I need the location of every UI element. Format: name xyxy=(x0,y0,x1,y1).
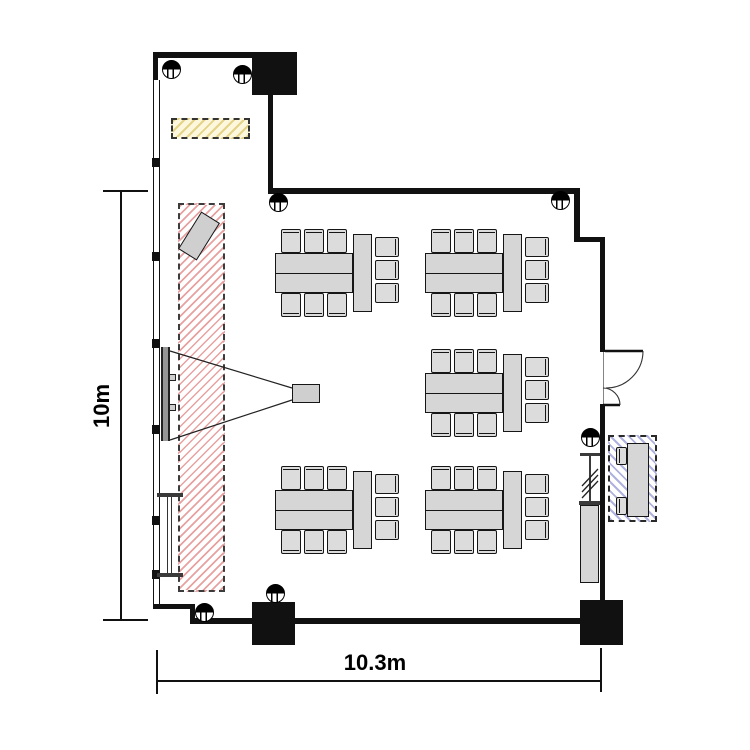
chair xyxy=(525,520,549,540)
chair xyxy=(477,466,497,490)
screen-bracket xyxy=(169,374,176,381)
chair xyxy=(327,530,347,554)
table xyxy=(425,253,503,293)
pillar-top xyxy=(252,55,297,95)
table-group xyxy=(425,229,550,317)
datum-marker-icon xyxy=(269,193,288,212)
chair xyxy=(327,293,347,317)
table-split-line xyxy=(425,393,503,394)
table-split-line xyxy=(275,510,353,511)
wall-right-upper xyxy=(600,237,605,352)
table-group xyxy=(275,229,400,317)
screen-bracket xyxy=(169,404,176,411)
table-split-line xyxy=(275,273,353,274)
linework-overlay xyxy=(0,0,750,750)
chair xyxy=(375,283,399,303)
chair xyxy=(616,497,627,515)
chair xyxy=(525,357,549,377)
dim-line-height xyxy=(120,191,122,620)
side-table xyxy=(503,234,522,312)
dim-line-width xyxy=(156,680,601,682)
chair xyxy=(431,466,451,490)
chair xyxy=(327,229,347,253)
chair xyxy=(375,520,399,540)
window-mullion xyxy=(152,339,159,348)
chair xyxy=(431,530,451,554)
chair xyxy=(304,293,324,317)
width-dimension-label: 10.3m xyxy=(330,650,420,676)
table xyxy=(275,490,353,530)
chair xyxy=(477,229,497,253)
chair xyxy=(327,466,347,490)
door-icon xyxy=(603,351,643,405)
table xyxy=(425,373,503,413)
chair xyxy=(477,349,497,373)
chair xyxy=(281,466,301,490)
side-table xyxy=(503,354,522,432)
chair xyxy=(281,229,301,253)
stage-strip-zone xyxy=(178,203,225,592)
chair xyxy=(304,466,324,490)
chair xyxy=(454,530,474,554)
table-split-line xyxy=(425,510,503,511)
chair xyxy=(525,380,549,400)
window-mullion xyxy=(152,158,159,167)
window-mullion xyxy=(152,516,159,525)
table-split-line xyxy=(425,273,503,274)
table-group xyxy=(425,466,550,554)
chair xyxy=(304,229,324,253)
height-dimension-label: 10m xyxy=(89,376,115,436)
window-mullion xyxy=(152,252,159,261)
projector xyxy=(292,384,320,403)
chair xyxy=(281,293,301,317)
chair xyxy=(454,466,474,490)
screen xyxy=(161,347,170,441)
chair xyxy=(431,229,451,253)
chair xyxy=(525,497,549,517)
chair xyxy=(477,413,497,437)
wall-bottom-left xyxy=(153,604,193,609)
chair xyxy=(375,260,399,280)
dim-tick xyxy=(103,619,148,621)
side-counter xyxy=(580,505,599,583)
datum-marker-icon xyxy=(266,584,285,603)
chair xyxy=(454,293,474,317)
datum-marker-icon xyxy=(162,60,181,79)
rail-line xyxy=(167,497,172,573)
table-group xyxy=(425,349,550,437)
chair xyxy=(525,283,549,303)
ceiling-equipment-zone xyxy=(171,118,250,139)
partition-line xyxy=(589,456,591,505)
table-group xyxy=(275,466,400,554)
side-table xyxy=(503,471,522,549)
chair xyxy=(375,474,399,494)
chair xyxy=(525,403,549,423)
dim-ext-left xyxy=(156,650,158,694)
chair xyxy=(375,237,399,257)
chair xyxy=(431,293,451,317)
table xyxy=(275,253,353,293)
dim-ext-right xyxy=(600,648,602,692)
chair xyxy=(525,474,549,494)
floor-plan: 10m 10.3m xyxy=(0,0,750,750)
chair xyxy=(525,237,549,257)
chair xyxy=(454,229,474,253)
chair xyxy=(281,530,301,554)
wall-right-lower xyxy=(600,404,605,618)
wall-mid-top xyxy=(268,188,580,194)
chair xyxy=(525,260,549,280)
dim-tick xyxy=(103,190,148,192)
chair xyxy=(477,530,497,554)
window-mullion xyxy=(152,425,159,434)
chair xyxy=(454,413,474,437)
chair xyxy=(304,530,324,554)
pillar-bottom-right xyxy=(580,600,623,645)
chair xyxy=(616,447,627,465)
chair xyxy=(375,497,399,517)
datum-marker-icon xyxy=(233,65,252,84)
chair xyxy=(477,293,497,317)
rail-bottom-bar xyxy=(157,573,183,577)
datum-marker-icon xyxy=(581,428,600,447)
wall-left-cap xyxy=(153,52,158,80)
side-table xyxy=(353,471,372,549)
wall-step-vert xyxy=(574,188,580,242)
pillar-bottom-left xyxy=(252,602,295,645)
chair xyxy=(431,413,451,437)
chair xyxy=(431,349,451,373)
table xyxy=(425,490,503,530)
wall-neck xyxy=(268,95,273,190)
storage-table xyxy=(627,443,649,517)
side-table xyxy=(353,234,372,312)
datum-marker-icon xyxy=(551,191,570,210)
chair xyxy=(454,349,474,373)
datum-marker-icon xyxy=(195,603,214,622)
